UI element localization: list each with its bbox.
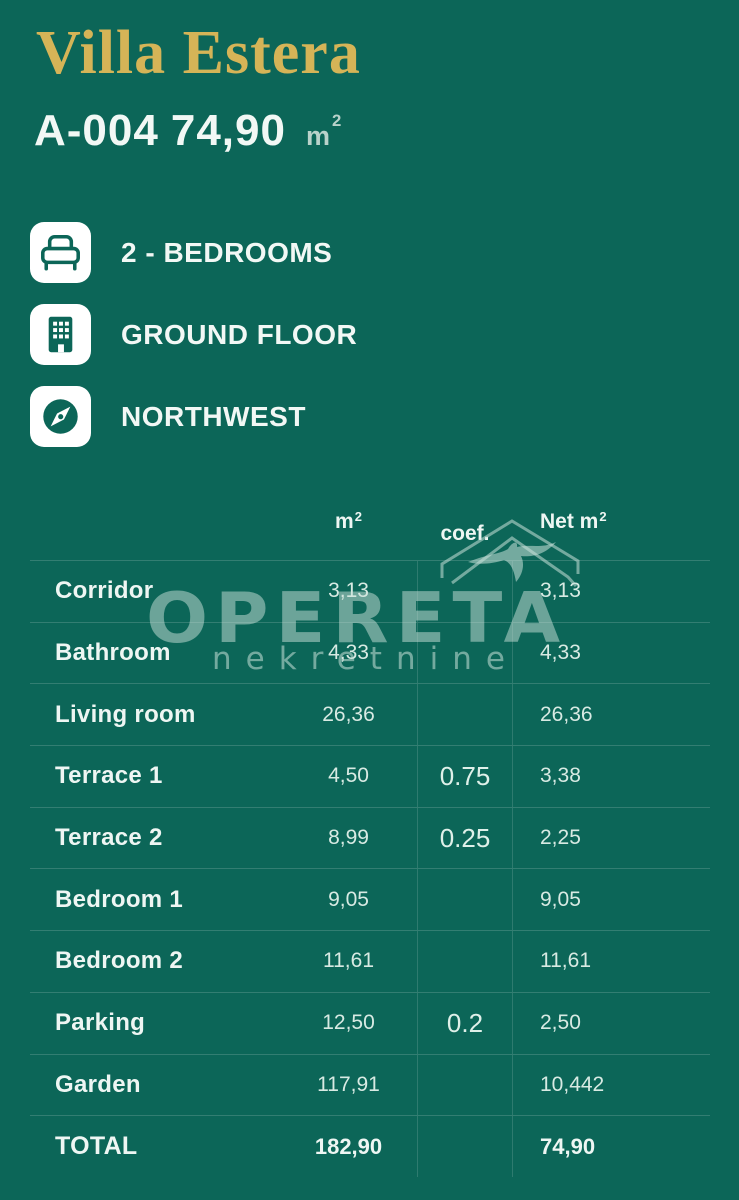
feature-bedrooms-label: 2 - BEDROOMS bbox=[121, 237, 332, 269]
table-header-row: m2 coef. Net m2 bbox=[30, 498, 710, 560]
unit-id: A-004 bbox=[34, 106, 159, 156]
table-row-total: TOTAL 182,90 74,90 bbox=[30, 1115, 710, 1177]
page-title: Villa Estera bbox=[36, 18, 361, 89]
table-row-terrace-1: Terrace 1 4,50 0.75 3,38 bbox=[30, 745, 710, 807]
table-row-parking: Parking 12,50 0.2 2,50 bbox=[30, 992, 710, 1054]
feature-orientation: NORTHWEST bbox=[30, 386, 357, 447]
header-net: Net m2 bbox=[513, 510, 710, 534]
table-row-bathroom: Bathroom 4,33 4,33 bbox=[30, 622, 710, 684]
table-row-corridor: Corridor 3,13 3,13 bbox=[30, 560, 710, 622]
feature-floor: GROUND FLOOR bbox=[30, 304, 357, 365]
header-m2: m2 bbox=[280, 510, 417, 534]
square-meter-unit: m2 bbox=[306, 120, 342, 152]
table-row-terrace-2: Terrace 2 8,99 0.25 2,25 bbox=[30, 807, 710, 869]
compass-icon bbox=[30, 386, 91, 447]
area-table: m2 coef. Net m2 Corridor 3,13 3,13 Bathr… bbox=[30, 498, 710, 1177]
feature-orientation-label: NORTHWEST bbox=[121, 401, 306, 433]
feature-floor-label: GROUND FLOOR bbox=[121, 319, 357, 351]
feature-bedrooms: 2 - BEDROOMS bbox=[30, 222, 357, 283]
property-card: Villa Estera A-004 74,90 m2 2 - BEDROOMS bbox=[0, 0, 739, 1200]
unit-area: 74,90 bbox=[171, 106, 286, 156]
table-row-bedroom-1: Bedroom 1 9,05 9,05 bbox=[30, 868, 710, 930]
building-icon bbox=[30, 304, 91, 365]
header-coef: coef. bbox=[417, 498, 513, 546]
table-row-garden: Garden 117,91 10,442 bbox=[30, 1054, 710, 1116]
table-row-living-room: Living room 26,36 26,36 bbox=[30, 683, 710, 745]
table-row-bedroom-2: Bedroom 2 11,61 11,61 bbox=[30, 930, 710, 992]
feature-list: 2 - BEDROOMS GROUND FLOOR bbox=[30, 222, 357, 468]
bed-icon bbox=[30, 222, 91, 283]
unit-area-line: A-004 74,90 m2 bbox=[34, 106, 342, 156]
